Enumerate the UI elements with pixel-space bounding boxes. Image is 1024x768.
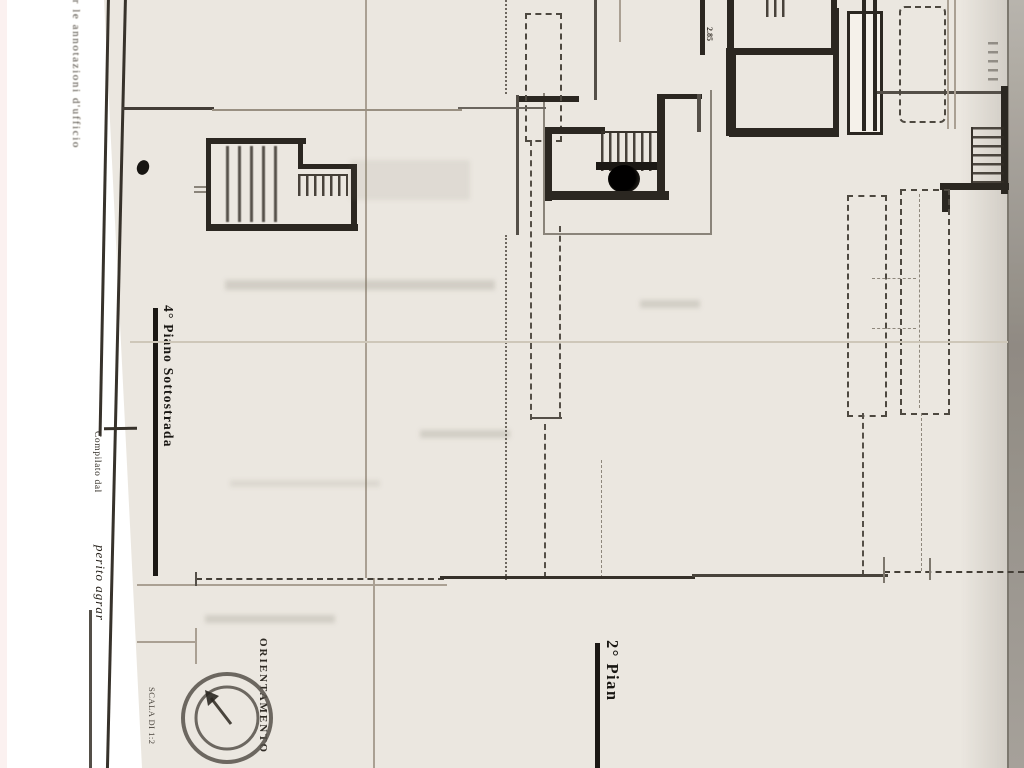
wall-segment: [657, 94, 665, 198]
margin-annotation-note: per le annotazioni d'ufficio: [70, 0, 82, 149]
dashed-line: [921, 413, 922, 571]
scan-edge-band: [1008, 0, 1024, 768]
compiled-by-label: Compilato dal: [92, 431, 102, 493]
boundary-line: [440, 576, 695, 579]
reference-line: [122, 107, 214, 110]
form-section-divider: [104, 427, 137, 430]
scan-smudge: [640, 300, 700, 308]
room-outline: [710, 90, 712, 235]
dashed-line: [601, 460, 602, 578]
ink-blot: [135, 158, 151, 176]
wall-segment: [700, 0, 705, 55]
wall-segment: [730, 48, 834, 55]
tie-line: [194, 191, 206, 193]
compiled-by-value: perito agrar: [92, 545, 108, 621]
wall-segment: [726, 48, 736, 136]
second-floor-label-underline: [595, 643, 600, 768]
wall-segment: [873, 0, 877, 131]
corridor-wall-line: [516, 95, 519, 235]
tie-line: [194, 186, 206, 188]
balcony-dashed-outline: [525, 13, 562, 142]
elevator-shaft: [608, 165, 640, 193]
wall-segment: [206, 138, 306, 144]
dashed-line: [872, 278, 916, 279]
boundary-dashed-line: [884, 571, 1024, 573]
plan-sheet: per le annotazioni d'ufficio Compilato d…: [0, 0, 1024, 768]
wall-segment: [545, 127, 552, 201]
tick-mark: [929, 558, 931, 580]
wall-segment: [727, 0, 734, 50]
wall-segment: [697, 94, 701, 132]
boundary-line: [692, 574, 888, 577]
dotted-line: [505, 235, 507, 580]
tick-mark: [195, 628, 197, 664]
partition-line: [954, 0, 956, 129]
scale-label: SCALA DI 1:2: [147, 687, 157, 744]
dashed-line: [559, 226, 561, 418]
dashed-line: [530, 140, 532, 420]
wall-segment: [657, 94, 702, 99]
tick-mark: [883, 557, 885, 583]
balcony-dashed-outline: [900, 189, 950, 415]
faint-grid-line: [137, 584, 447, 586]
stair-steps: [971, 127, 1004, 187]
wall-segment: [549, 191, 669, 200]
wall-segment: [833, 8, 839, 137]
partition-line: [947, 0, 949, 129]
wall-hatching: [226, 146, 284, 222]
dashed-line: [919, 194, 920, 408]
wall-segment: [940, 183, 1009, 190]
room-outline: [543, 233, 711, 235]
small-annotation-marks: [988, 42, 998, 84]
scan-smudge: [350, 160, 470, 200]
wall-segment: [862, 0, 866, 131]
construction-line: [373, 578, 375, 768]
partition-line: [594, 0, 597, 100]
wall-segment: [298, 164, 356, 169]
balcony-dashed-outline: [899, 6, 946, 123]
dimension-label: 2.85: [705, 27, 714, 41]
wall-hatching: [766, 0, 790, 17]
wall-segment: [206, 138, 211, 231]
balcony-dashed-outline: [847, 195, 887, 417]
second-floor-label: 2° Pian: [602, 640, 622, 702]
scan-smudge: [420, 430, 510, 438]
tick-mark: [195, 572, 197, 586]
dotted-line: [505, 0, 507, 94]
wall-segment: [545, 127, 605, 134]
compiled-by-underline: [89, 610, 92, 768]
scanned-floor-plan-page: per le annotazioni d'ufficio Compilato d…: [0, 0, 1024, 768]
page-left-edge: [0, 0, 7, 768]
scan-smudge: [205, 615, 335, 623]
faint-grid-line: [137, 641, 195, 643]
stair-hatching: [298, 174, 348, 196]
partition-line: [619, 0, 621, 42]
wall-segment: [729, 128, 837, 137]
reference-line: [212, 109, 462, 111]
boundary-dashed-line: [196, 578, 444, 580]
connector-line: [532, 417, 562, 419]
wall-segment: [206, 224, 358, 231]
compass-north-icon: [175, 666, 279, 768]
dashed-line: [544, 424, 546, 578]
dashed-line: [862, 413, 864, 576]
basement-label-underline: [153, 308, 158, 576]
faint-grid-line: [130, 341, 1008, 343]
scan-smudge: [230, 480, 380, 487]
scan-smudge: [225, 280, 495, 290]
basement-floor-label: 4° Piano Sottostrada: [160, 305, 176, 448]
reference-line: [458, 107, 546, 109]
dashed-line: [872, 328, 916, 329]
